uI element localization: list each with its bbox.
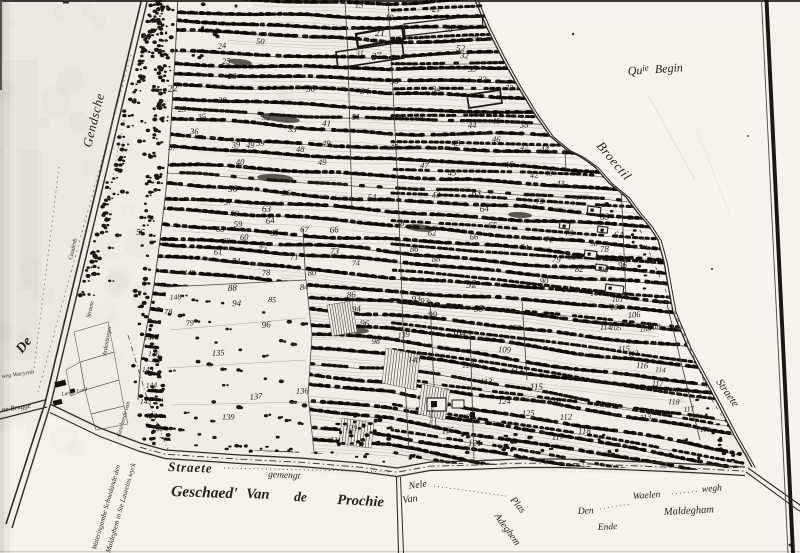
svg-text:118: 118 (668, 397, 680, 407)
svg-text:74: 74 (232, 256, 242, 266)
svg-text:gemengt: gemengt (268, 470, 301, 482)
svg-text:82: 82 (575, 264, 585, 274)
svg-text:39: 39 (230, 139, 241, 150)
svg-text:13: 13 (354, 0, 363, 10)
svg-text:112: 112 (628, 348, 639, 358)
svg-text:94: 94 (352, 304, 362, 314)
svg-text:47: 47 (520, 143, 529, 152)
svg-text:109: 109 (498, 344, 512, 355)
svg-text:40: 40 (236, 157, 246, 167)
svg-text:64: 64 (479, 203, 489, 214)
svg-text:99: 99 (428, 310, 438, 320)
svg-text:78: 78 (164, 307, 173, 317)
svg-text:wegh: wegh (702, 484, 723, 495)
svg-text:96: 96 (360, 318, 370, 328)
svg-text:79: 79 (185, 318, 194, 328)
svg-text:72: 72 (535, 196, 544, 206)
svg-text:136: 136 (296, 385, 310, 396)
svg-text:90: 90 (590, 239, 598, 248)
svg-text:73: 73 (330, 246, 340, 256)
svg-text:49: 49 (322, 138, 331, 148)
svg-text:60: 60 (240, 232, 249, 242)
svg-text:44: 44 (468, 120, 477, 130)
svg-text:108: 108 (639, 324, 651, 334)
svg-text:72: 72 (258, 244, 268, 254)
svg-text:78: 78 (600, 244, 610, 254)
svg-text:58: 58 (396, 218, 405, 228)
svg-text:135: 135 (212, 347, 225, 358)
svg-text:79: 79 (552, 254, 562, 264)
svg-text:63: 63 (472, 188, 482, 198)
svg-text:71: 71 (290, 252, 299, 262)
svg-text:101: 101 (612, 295, 624, 304)
svg-text:131: 131 (330, 435, 342, 444)
svg-text:1783: 1783 (576, 194, 590, 202)
svg-text:125: 125 (441, 425, 455, 436)
svg-text:116: 116 (548, 396, 562, 406)
svg-text:142: 142 (146, 411, 158, 420)
svg-text:96: 96 (618, 260, 628, 270)
svg-text:29: 29 (218, 95, 227, 105)
svg-text:58: 58 (230, 208, 240, 218)
svg-text:46: 46 (504, 159, 515, 170)
svg-text:69: 69 (222, 236, 232, 246)
svg-text:86: 86 (410, 244, 420, 254)
svg-text:23: 23 (178, 104, 187, 114)
svg-text:52: 52 (262, 112, 272, 122)
svg-text:50: 50 (306, 84, 316, 95)
svg-text:149: 149 (184, 268, 196, 277)
svg-text:44: 44 (540, 144, 550, 154)
svg-text:Ende: Ende (597, 522, 618, 533)
svg-text:51: 51 (351, 111, 360, 122)
svg-text:44: 44 (415, 112, 425, 122)
svg-text:19: 19 (385, 12, 395, 22)
svg-text:100: 100 (590, 288, 604, 298)
svg-text:137: 137 (249, 390, 264, 402)
svg-text:46: 46 (492, 116, 502, 126)
svg-text:41: 41 (322, 118, 332, 128)
svg-text:38: 38 (518, 119, 529, 130)
svg-text:38: 38 (389, 76, 399, 86)
svg-text:93: 93 (411, 293, 421, 304)
svg-text:45: 45 (447, 167, 456, 178)
svg-text:Prochie: Prochie (337, 492, 385, 510)
svg-text:Waelen: Waelen (633, 490, 661, 502)
svg-text:21: 21 (431, 3, 440, 14)
svg-text:54: 54 (368, 192, 378, 202)
svg-text:Van: Van (246, 486, 270, 503)
svg-text:Geschaed': Geschaed' (171, 483, 238, 502)
svg-text:85: 85 (268, 295, 276, 304)
svg-text:126: 126 (461, 411, 475, 422)
svg-text:57: 57 (223, 196, 233, 207)
svg-text:148: 148 (170, 292, 182, 302)
svg-text:72: 72 (545, 234, 555, 244)
svg-text:56: 56 (282, 188, 292, 198)
svg-text:113: 113 (640, 412, 652, 422)
svg-text:52: 52 (456, 43, 466, 53)
svg-text:56: 56 (228, 184, 238, 194)
svg-text:65: 65 (488, 220, 498, 230)
svg-text:48: 48 (545, 168, 554, 178)
svg-text:114: 114 (655, 365, 666, 375)
svg-text:67: 67 (300, 224, 310, 234)
svg-text:116: 116 (636, 360, 649, 370)
svg-text:63: 63 (262, 204, 272, 214)
svg-text:74: 74 (352, 259, 360, 268)
svg-text:42: 42 (529, 169, 539, 180)
svg-text:112: 112 (560, 411, 573, 422)
svg-text:63: 63 (600, 212, 610, 222)
svg-text:55: 55 (136, 227, 146, 237)
svg-text:116: 116 (668, 385, 679, 395)
svg-text:37: 37 (167, 142, 178, 153)
svg-text:129: 129 (345, 423, 357, 433)
svg-text:33: 33 (477, 74, 487, 85)
svg-text:114: 114 (510, 366, 524, 376)
svg-text:88: 88 (431, 253, 441, 264)
svg-text:98: 98 (372, 337, 380, 346)
svg-text:22: 22 (167, 83, 178, 95)
svg-text:Den: Den (577, 506, 595, 517)
svg-text:118: 118 (578, 426, 591, 436)
svg-text:68: 68 (216, 224, 226, 234)
svg-text:99: 99 (473, 303, 484, 315)
svg-text:110: 110 (462, 360, 475, 370)
svg-text:105: 105 (610, 323, 622, 332)
svg-text:91: 91 (568, 253, 576, 262)
svg-text:Straete: Straete (168, 459, 213, 476)
svg-text:43: 43 (451, 137, 460, 148)
svg-text:84: 84 (299, 281, 309, 292)
svg-text:74: 74 (520, 242, 529, 252)
svg-text:141: 141 (151, 424, 163, 434)
svg-text:36: 36 (189, 126, 199, 136)
svg-text:de: de (294, 489, 307, 504)
svg-text:76: 76 (564, 227, 574, 238)
svg-text:35: 35 (196, 111, 207, 122)
svg-text:146: 146 (148, 349, 160, 359)
svg-text:115: 115 (530, 382, 543, 392)
svg-text:26: 26 (444, 24, 454, 34)
svg-text:117: 117 (683, 404, 695, 414)
svg-text:53: 53 (467, 63, 477, 74)
svg-text:125: 125 (522, 408, 535, 418)
svg-text:86: 86 (346, 289, 356, 300)
svg-text:113: 113 (480, 376, 492, 386)
svg-text:103: 103 (508, 322, 521, 333)
svg-text:119: 119 (551, 431, 565, 442)
svg-text:147: 147 (144, 333, 156, 342)
svg-text:46: 46 (492, 134, 501, 144)
svg-text:Van: Van (402, 493, 418, 506)
svg-text:104: 104 (452, 328, 466, 338)
svg-text:43: 43 (556, 178, 565, 188)
svg-text:145: 145 (142, 365, 154, 374)
svg-text:59: 59 (233, 218, 243, 229)
svg-text:53: 53 (288, 124, 297, 134)
svg-text:49: 49 (246, 140, 255, 150)
svg-text:66: 66 (329, 224, 339, 235)
svg-text:64: 64 (265, 215, 275, 226)
svg-text:64: 64 (614, 231, 624, 241)
svg-text:25: 25 (222, 56, 231, 66)
svg-text:21: 21 (375, 28, 385, 39)
svg-text:96: 96 (600, 265, 609, 275)
svg-text:96: 96 (261, 319, 271, 330)
svg-text:47: 47 (420, 160, 430, 170)
svg-text:102: 102 (540, 310, 554, 320)
svg-text:119: 119 (700, 425, 711, 434)
svg-text:26: 26 (470, 32, 479, 42)
svg-text:140: 140 (408, 355, 420, 365)
svg-text:49: 49 (318, 157, 327, 167)
svg-text:65: 65 (269, 227, 279, 238)
svg-text:34: 34 (359, 86, 370, 96)
svg-text:12: 12 (329, 0, 338, 6)
svg-text:62: 62 (427, 227, 437, 238)
svg-text:92: 92 (465, 278, 477, 291)
svg-text:91: 91 (562, 284, 572, 295)
svg-text:144: 144 (146, 380, 158, 390)
svg-text:33: 33 (504, 83, 514, 93)
svg-text:121: 121 (468, 438, 482, 448)
svg-text:34: 34 (431, 84, 442, 94)
svg-text:31: 31 (355, 48, 365, 58)
svg-text:124: 124 (498, 396, 512, 406)
svg-text:61: 61 (213, 246, 222, 257)
svg-text:88: 88 (228, 283, 238, 293)
svg-text:139: 139 (397, 330, 410, 340)
svg-text:93: 93 (420, 296, 430, 306)
svg-text:117: 117 (652, 379, 664, 388)
svg-text:90: 90 (539, 275, 549, 286)
svg-text:143: 143 (140, 397, 152, 406)
svg-text:45: 45 (390, 142, 399, 152)
svg-text:106: 106 (627, 309, 641, 320)
svg-text:139: 139 (222, 412, 236, 422)
svg-text:59: 59 (256, 138, 265, 148)
svg-text:94: 94 (232, 298, 242, 308)
svg-text:50: 50 (256, 36, 266, 46)
svg-text:28: 28 (228, 71, 237, 81)
svg-text:48: 48 (296, 144, 305, 154)
